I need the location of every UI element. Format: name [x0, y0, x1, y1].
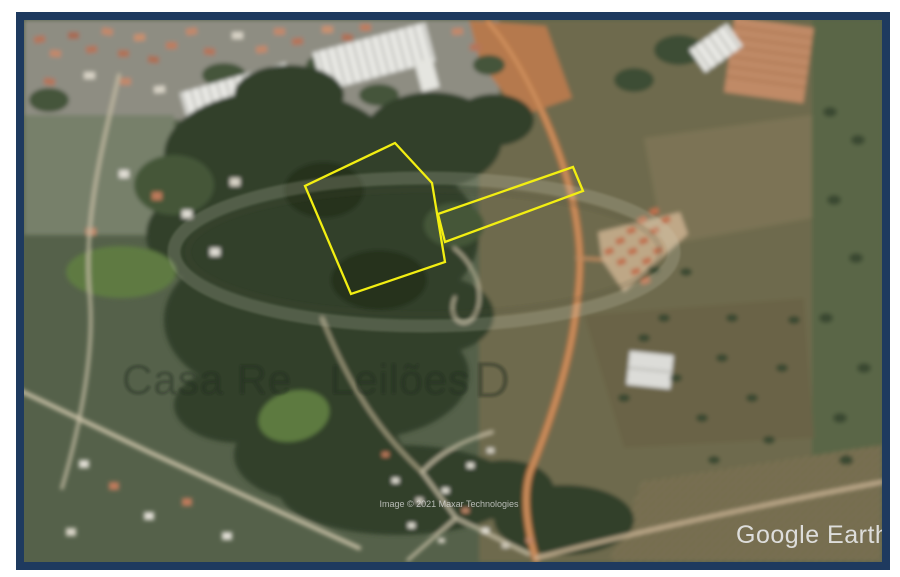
page: Casa Re Leilões D Image © 2021 Maxar Tec…: [0, 0, 900, 577]
watermark-text-1: Casa Re: [122, 356, 292, 403]
map-attribution: Image © 2021 Maxar Technologies: [379, 499, 519, 509]
map-terrain: [24, 20, 882, 562]
watermark-text-3: D: [474, 352, 510, 408]
image-frame: Casa Re Leilões D Image © 2021 Maxar Tec…: [16, 12, 890, 570]
satellite-map: Casa Re Leilões D Image © 2021 Maxar Tec…: [24, 20, 882, 562]
watermark-text-2: Leilões: [330, 356, 470, 403]
google-earth-logo: Google Earth: [736, 521, 882, 549]
